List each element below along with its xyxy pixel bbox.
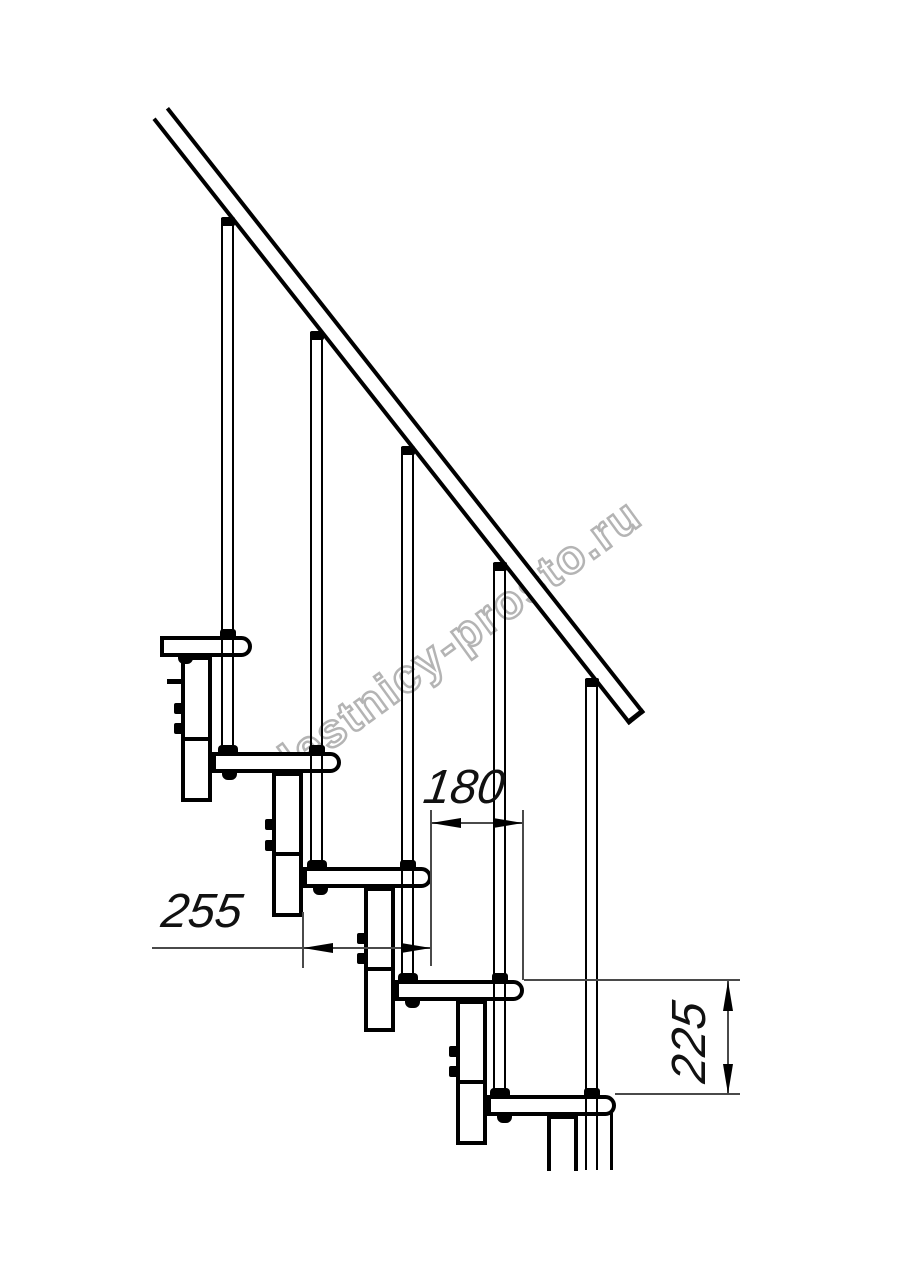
dimension-label-180: 180 xyxy=(420,760,508,815)
tread-1 xyxy=(160,636,252,657)
arrowhead-down xyxy=(723,1064,733,1094)
cutoff-line xyxy=(610,1113,613,1170)
tread-bolt xyxy=(405,1000,420,1008)
module-joint-1 xyxy=(181,737,212,741)
tread-bolt xyxy=(222,772,237,780)
technical-drawing-canvas: lestnicy-prosto.ru xyxy=(0,0,914,1280)
tread-bolt xyxy=(313,887,328,895)
baluster-2 xyxy=(310,332,323,867)
spine-column-1 xyxy=(181,656,212,802)
clamp-bolt xyxy=(449,1046,458,1057)
baluster-rail-connector xyxy=(310,331,324,340)
spine-column-4 xyxy=(456,1000,487,1145)
baluster-rail-connector xyxy=(221,217,235,226)
baluster-rail-connector xyxy=(585,678,599,687)
dimension-label-255: 255 xyxy=(158,884,246,939)
extension-line xyxy=(522,810,524,980)
module-joint-3 xyxy=(364,967,395,971)
arrowhead-right xyxy=(401,943,431,953)
tread-bolt xyxy=(497,1115,512,1123)
baluster-1 xyxy=(221,218,234,752)
baluster-4 xyxy=(493,563,506,1095)
clamp-bolt xyxy=(449,1066,458,1077)
spine-column-5 xyxy=(547,1115,578,1171)
cut-stub xyxy=(167,679,182,684)
clamp-bolt xyxy=(265,819,274,830)
arrowhead-right xyxy=(493,818,523,828)
clamp-bolt xyxy=(357,953,366,964)
baluster-3 xyxy=(401,447,414,980)
clamp-bolt xyxy=(357,933,366,944)
extension-line xyxy=(302,912,304,968)
module-joint-2 xyxy=(272,852,303,856)
dimension-line-255 xyxy=(152,947,432,949)
spine-column-3 xyxy=(364,887,395,1032)
extension-line xyxy=(524,979,740,981)
module-joint-4 xyxy=(456,1080,487,1084)
arrowhead-left xyxy=(303,943,333,953)
spine-column-2 xyxy=(272,772,303,917)
arrowhead-up xyxy=(723,981,733,1011)
clamp-bolt xyxy=(174,723,183,734)
dimension-label-225: 225 xyxy=(665,977,715,1106)
clamp-bolt xyxy=(265,840,274,851)
arrowhead-left xyxy=(431,818,461,828)
baluster-5 xyxy=(585,679,598,1170)
clamp-bolt xyxy=(174,703,183,714)
baluster-rail-connector xyxy=(401,446,415,455)
baluster-rail-connector xyxy=(493,562,507,571)
